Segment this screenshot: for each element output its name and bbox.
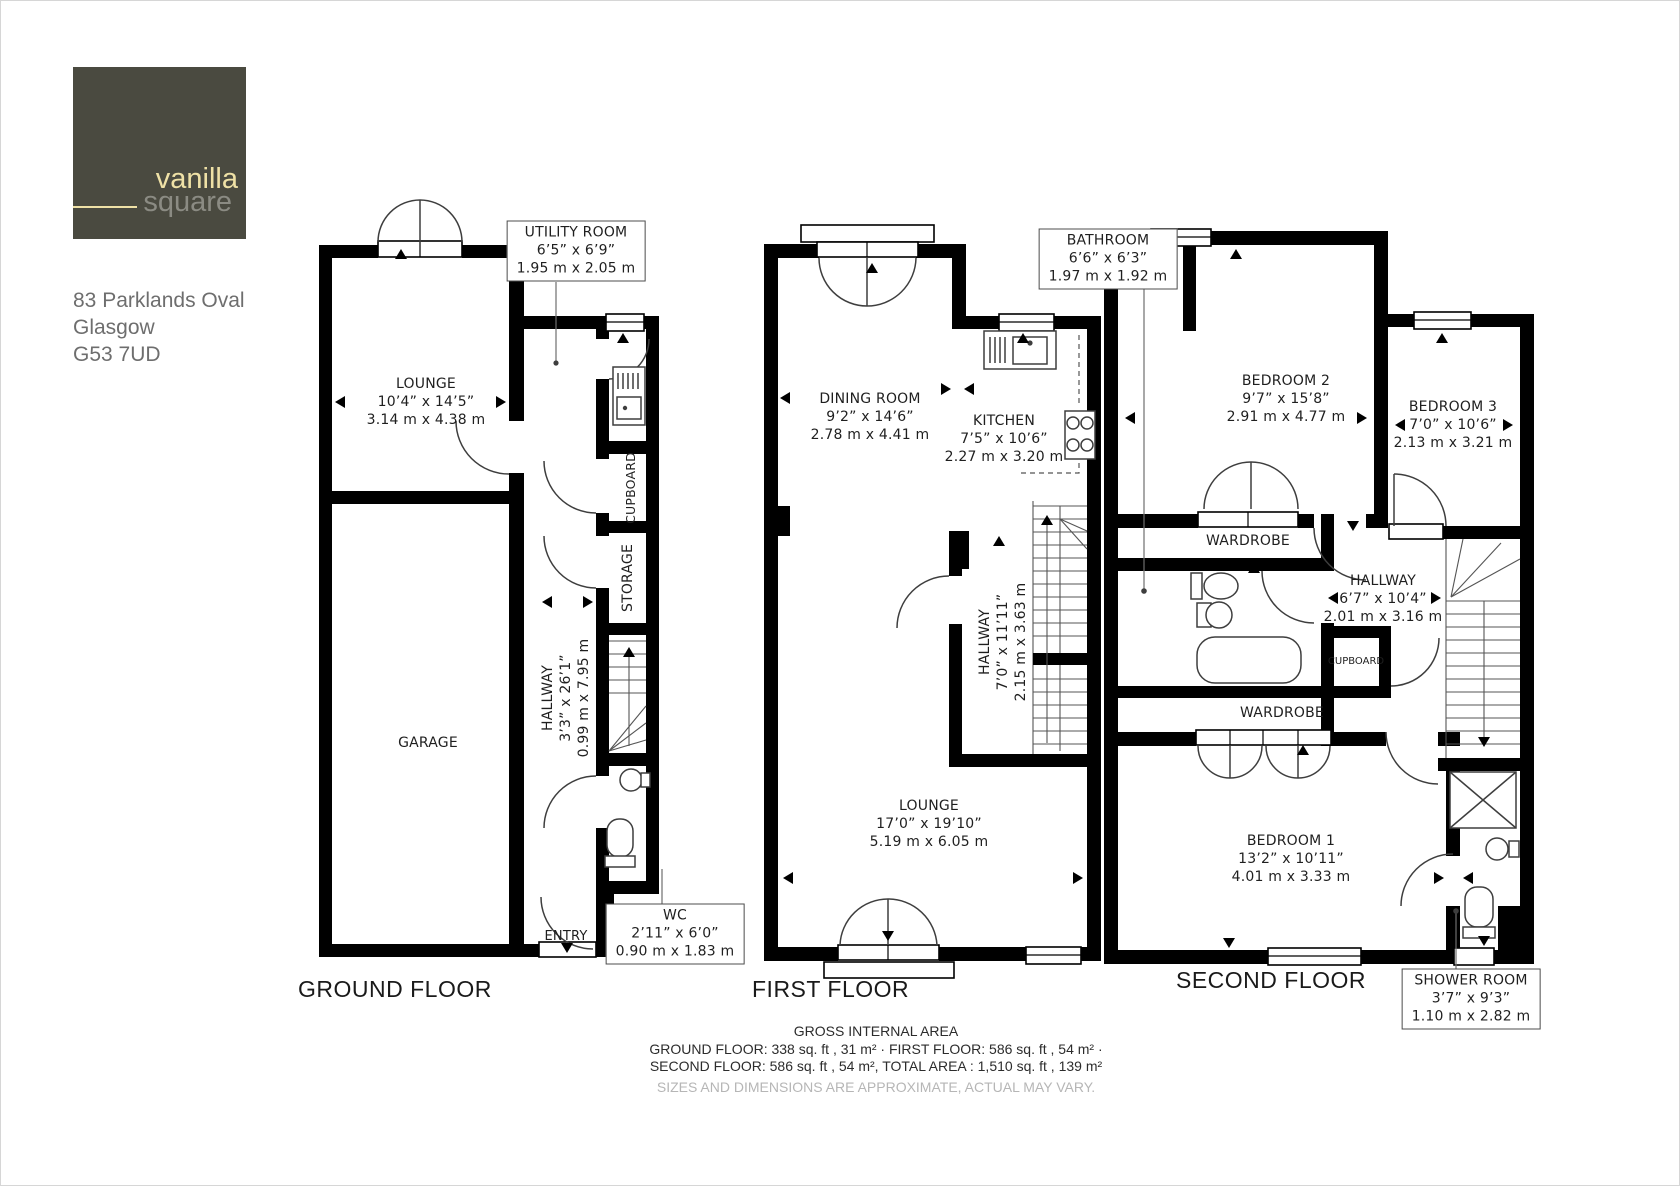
footer-areas-line2: SECOND FLOOR: 586 sq. ft , 54 m², TOTAL …: [649, 1058, 1102, 1076]
room-dim-imperial: 3’7” x 9’3”: [1412, 990, 1531, 1008]
room-dim-imperial: 7’0” x 11’11”: [994, 583, 1012, 702]
room-dim-metric: 5.19 m x 6.05 m: [870, 833, 989, 851]
room-dim-imperial: 13’2” x 10’11”: [1232, 850, 1351, 868]
agency-logo: vanilla square: [73, 67, 246, 239]
room-label-hallway-ground: HALLWAY 3’3” x 26’1” 0.99 m x 7.95 m: [539, 639, 593, 758]
balcony-frame: [801, 225, 934, 242]
room-dim-imperial: 6’7” x 10’4”: [1324, 590, 1443, 608]
room-dim-imperial: 6’5” x 6’9”: [517, 242, 636, 260]
room-label-wardrobe-b: WARDROBE: [1240, 704, 1324, 722]
address-line2: Glasgow: [73, 314, 245, 341]
room-dim-metric: 3.14 m x 4.38 m: [367, 411, 486, 429]
shower-window: [1454, 948, 1494, 965]
room-name: BEDROOM 1: [1232, 832, 1351, 850]
room-label-lounge-ground: LOUNGE 10’4” x 14’5” 3.14 m x 4.38 m: [367, 375, 486, 429]
room-label-bedroom3: BEDROOM 3 7’0” x 10’6” 2.13 m x 3.21 m: [1394, 398, 1513, 452]
room-dim-metric: 2.78 m x 4.41 m: [811, 426, 930, 444]
room-dim-imperial: 2’11” x 6’0”: [616, 925, 735, 943]
room-name: HALLWAY: [976, 583, 994, 702]
room-name: SHOWER ROOM: [1412, 972, 1531, 990]
room-name: WARDROBE: [1206, 532, 1290, 550]
room-dim-metric: 2.27 m x 3.20 m: [945, 448, 1064, 466]
address-line3: G53 7UD: [73, 341, 245, 368]
room-name: LOUNGE: [870, 797, 989, 815]
room-dim-imperial: 17’0” x 19’10”: [870, 815, 989, 833]
first-stairs: [1033, 501, 1087, 754]
room-label-bathroom: BATHROOM 6’6” x 6’3” 1.97 m x 1.92 m: [1039, 229, 1178, 290]
room-dim-imperial: 6’6” x 6’3”: [1049, 250, 1168, 268]
second-stairs: [1446, 539, 1520, 758]
room-name: CUPBOARD: [622, 452, 640, 524]
room-dim-metric: 1.97 m x 1.92 m: [1049, 268, 1168, 286]
room-name: KITCHEN: [945, 412, 1064, 430]
ground-stairs: [609, 641, 646, 751]
room-dim-imperial: 10’4” x 14’5”: [367, 393, 486, 411]
room-label-storage: STORAGE: [619, 544, 637, 612]
footer-areas-line1: GROUND FLOOR: 338 sq. ft , 31 m² · FIRST…: [649, 1041, 1102, 1059]
room-dim-metric: 2.01 m x 3.16 m: [1324, 608, 1443, 626]
room-dim-imperial: 9’2” x 14’6”: [811, 408, 930, 426]
first-floor-title: FIRST FLOOR: [752, 976, 909, 1003]
floorplan-sheet: vanilla square 83 Parklands Oval Glasgow…: [0, 0, 1680, 1186]
logo-name-bottom: square: [143, 188, 232, 217]
room-name: BEDROOM 3: [1394, 398, 1513, 416]
room-label-bedroom1: BEDROOM 1 13’2” x 10’11” 4.01 m x 3.33 m: [1232, 832, 1351, 886]
address-line1: 83 Parklands Oval: [73, 287, 245, 314]
room-dim-imperial: 7’0” x 10’6”: [1394, 416, 1513, 434]
room-label-cupboard-ground: CUPBOARD: [622, 452, 640, 524]
room-name: ENTRY: [544, 928, 587, 946]
footer-disclaimer: SIZES AND DIMENSIONS ARE APPROXIMATE, AC…: [649, 1079, 1102, 1097]
room-dim-imperial: 7’5” x 10’6”: [945, 430, 1064, 448]
room-name: WC: [616, 907, 735, 925]
ground-floor-title: GROUND FLOOR: [298, 976, 492, 1003]
room-label-wardrobe-a: WARDROBE: [1206, 532, 1290, 550]
room-label-entry: ENTRY: [544, 928, 587, 946]
shower-door-arc: [1401, 854, 1453, 906]
room-name: UTILITY ROOM: [517, 224, 636, 242]
room-dim-metric: 0.99 m x 7.95 m: [575, 639, 593, 758]
room-name: DINING ROOM: [811, 390, 930, 408]
bedroom1-door-arc: [1386, 732, 1438, 784]
room-name: HALLWAY: [1324, 572, 1443, 590]
room-dim-metric: 2.13 m x 3.21 m: [1394, 434, 1513, 452]
bathroom-door-arc: [1262, 571, 1314, 623]
storage-door-arc: [544, 536, 596, 588]
room-label-hallway-second: HALLWAY 6’7” x 10’4” 2.01 m x 3.16 m: [1324, 572, 1443, 626]
gross-internal-area: GROSS INTERNAL AREA GROUND FLOOR: 338 sq…: [649, 1023, 1102, 1096]
wc-fixtures: [605, 769, 650, 867]
first-hallway-door-arc: [897, 576, 949, 628]
bedroom3-door-arc: [1394, 474, 1446, 526]
logo-rule: [73, 206, 137, 208]
cupboard-door-arc: [544, 461, 596, 513]
room-dim-imperial: 3’3” x 26’1”: [557, 639, 575, 758]
room-dim-metric: 1.95 m x 2.05 m: [517, 260, 636, 278]
room-dim-imperial: 9’7” x 15’8”: [1227, 390, 1346, 408]
room-name: CUPBOARD: [1328, 653, 1384, 671]
room-dim-metric: 2.91 m x 4.77 m: [1227, 408, 1346, 426]
room-label-lounge-first: LOUNGE 17’0” x 19’10” 5.19 m x 6.05 m: [870, 797, 989, 851]
room-name: GARAGE: [398, 734, 458, 752]
washing-machine-icon: [613, 367, 645, 425]
room-name: LOUNGE: [367, 375, 486, 393]
room-label-hallway-first: HALLWAY 7’0” x 11’11” 2.15 m x 3.63 m: [976, 583, 1030, 702]
room-label-utility: UTILITY ROOM 6’5” x 6’9” 1.95 m x 2.05 m: [507, 221, 646, 282]
room-label-dining: DINING ROOM 9’2” x 14’6” 2.78 m x 4.41 m: [811, 390, 930, 444]
property-address: 83 Parklands Oval Glasgow G53 7UD: [73, 287, 245, 368]
ground-floor-plan: [319, 200, 662, 957]
room-dim-metric: 2.15 m x 3.63 m: [1012, 583, 1030, 702]
room-name: HALLWAY: [539, 639, 557, 758]
room-name: WARDROBE: [1240, 704, 1324, 722]
room-label-wc: WC 2’11” x 6’0” 0.90 m x 1.83 m: [606, 904, 745, 965]
room-dim-metric: 0.90 m x 1.83 m: [616, 943, 735, 961]
footer-heading: GROSS INTERNAL AREA: [649, 1023, 1102, 1041]
wc-door-arc: [544, 776, 596, 828]
room-label-shower: SHOWER ROOM 3’7” x 9’3” 1.10 m x 2.82 m: [1402, 969, 1541, 1030]
room-label-cupboard-second: CUPBOARD: [1328, 653, 1384, 671]
room-name: STORAGE: [619, 544, 637, 612]
room-name: BEDROOM 2: [1227, 372, 1346, 390]
room-dim-metric: 4.01 m x 3.33 m: [1232, 868, 1351, 886]
room-label-kitchen: KITCHEN 7’5” x 10’6” 2.27 m x 3.20 m: [945, 412, 1064, 466]
bathroom-fixtures: [1191, 573, 1301, 683]
cupboard2-door-arc: [1391, 638, 1439, 686]
bedroom3-door-sill: [1389, 524, 1443, 539]
room-label-garage: GARAGE: [398, 734, 458, 752]
room-label-bedroom2: BEDROOM 2 9’7” x 15’8” 2.91 m x 4.77 m: [1227, 372, 1346, 426]
room-name: BATHROOM: [1049, 232, 1168, 250]
second-floor-title: SECOND FLOOR: [1176, 967, 1366, 994]
first-floor-plan: [764, 225, 1101, 978]
room-dim-metric: 1.10 m x 2.82 m: [1412, 1008, 1531, 1026]
